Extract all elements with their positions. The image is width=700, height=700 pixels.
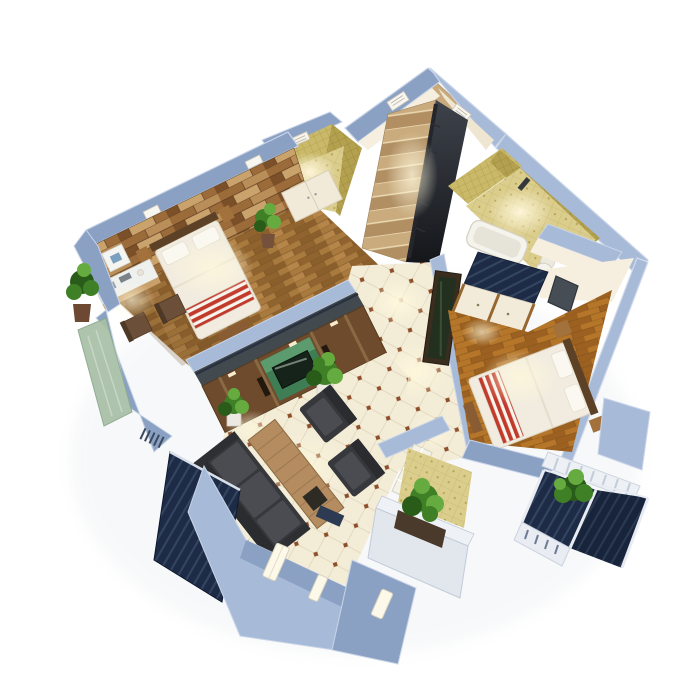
bedroom2-light-glow: [482, 350, 558, 406]
plant-foliage: [264, 203, 276, 215]
hallway-light-glow-1: [368, 278, 428, 326]
plant-foliage: [83, 280, 99, 296]
plant-foliage: [254, 220, 266, 232]
wardrobe-handle: [507, 313, 510, 316]
plant-foliage: [218, 402, 232, 416]
bathroom-light-glow: [488, 188, 552, 236]
floor-plan-page: [0, 0, 700, 700]
plant-foliage: [306, 370, 322, 386]
plant-foliage: [66, 284, 82, 300]
plant-pot: [73, 304, 91, 322]
plant-foliage: [568, 469, 584, 485]
plant-foliage: [313, 357, 325, 369]
plant-foliage: [554, 478, 566, 490]
plant-foliage: [235, 400, 249, 414]
plant-foliage: [228, 388, 240, 400]
plant-foliage: [422, 506, 438, 522]
master-light-glow: [170, 238, 254, 298]
bedroom2-light-glow-2: [462, 318, 502, 346]
floor-plan-3d-render: [0, 0, 700, 700]
plant-foliage: [414, 478, 430, 494]
plant-foliage: [327, 368, 343, 384]
wardrobe-handle: [477, 304, 480, 307]
plant-foliage: [402, 496, 422, 516]
staircase-light-glow: [386, 131, 438, 219]
plant-foliage: [267, 215, 281, 229]
plant-foliage: [575, 484, 593, 502]
plant-foliage: [77, 263, 91, 277]
plant-pot: [261, 234, 275, 248]
